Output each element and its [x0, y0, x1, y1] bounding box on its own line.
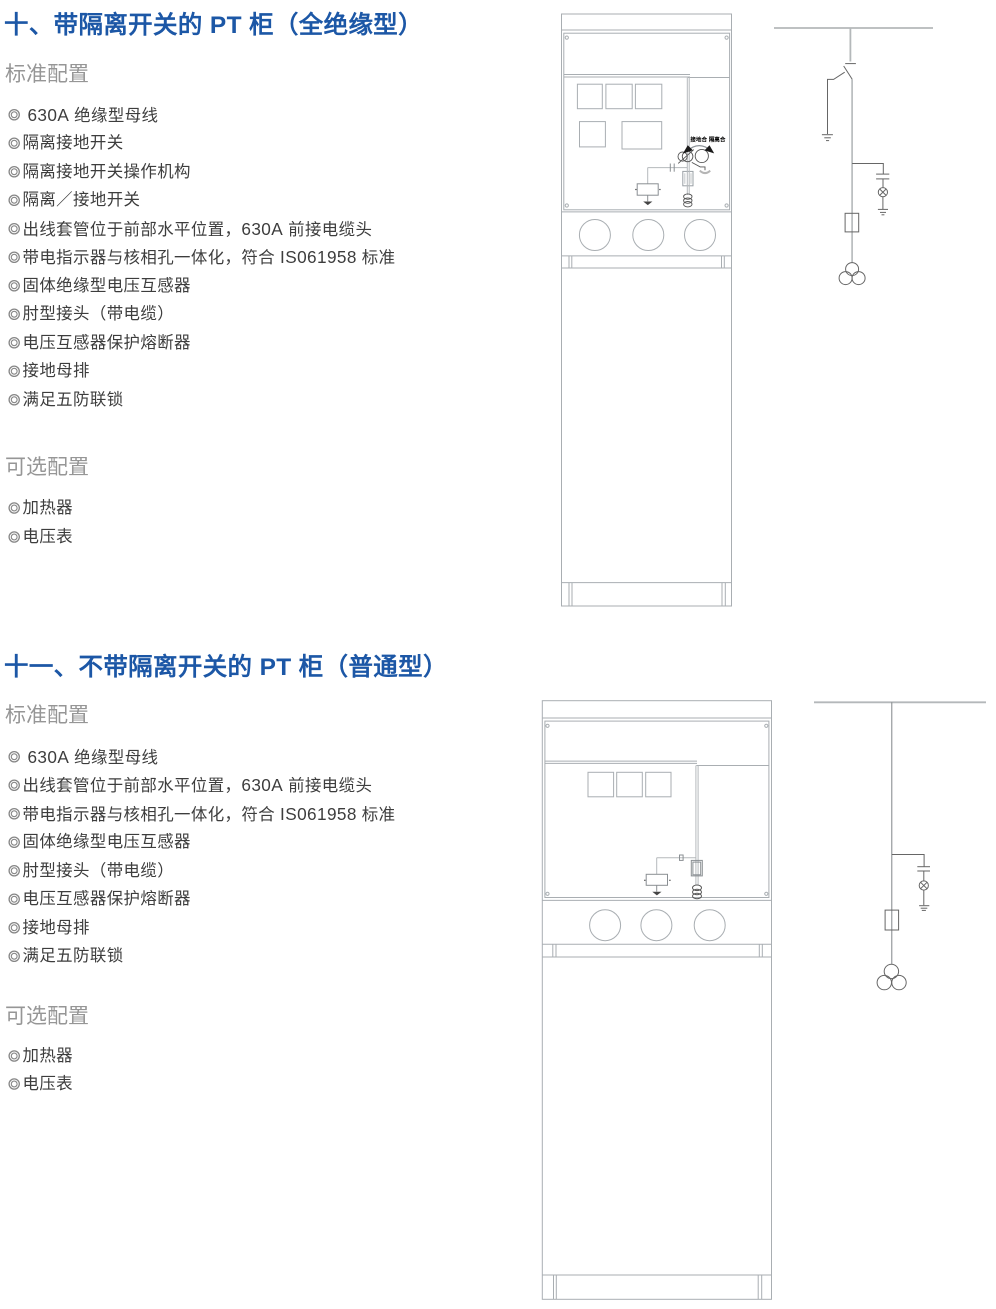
svg-text:接地合: 接地合 [690, 135, 707, 143]
svg-text:隔离合: 隔离合 [709, 135, 726, 143]
